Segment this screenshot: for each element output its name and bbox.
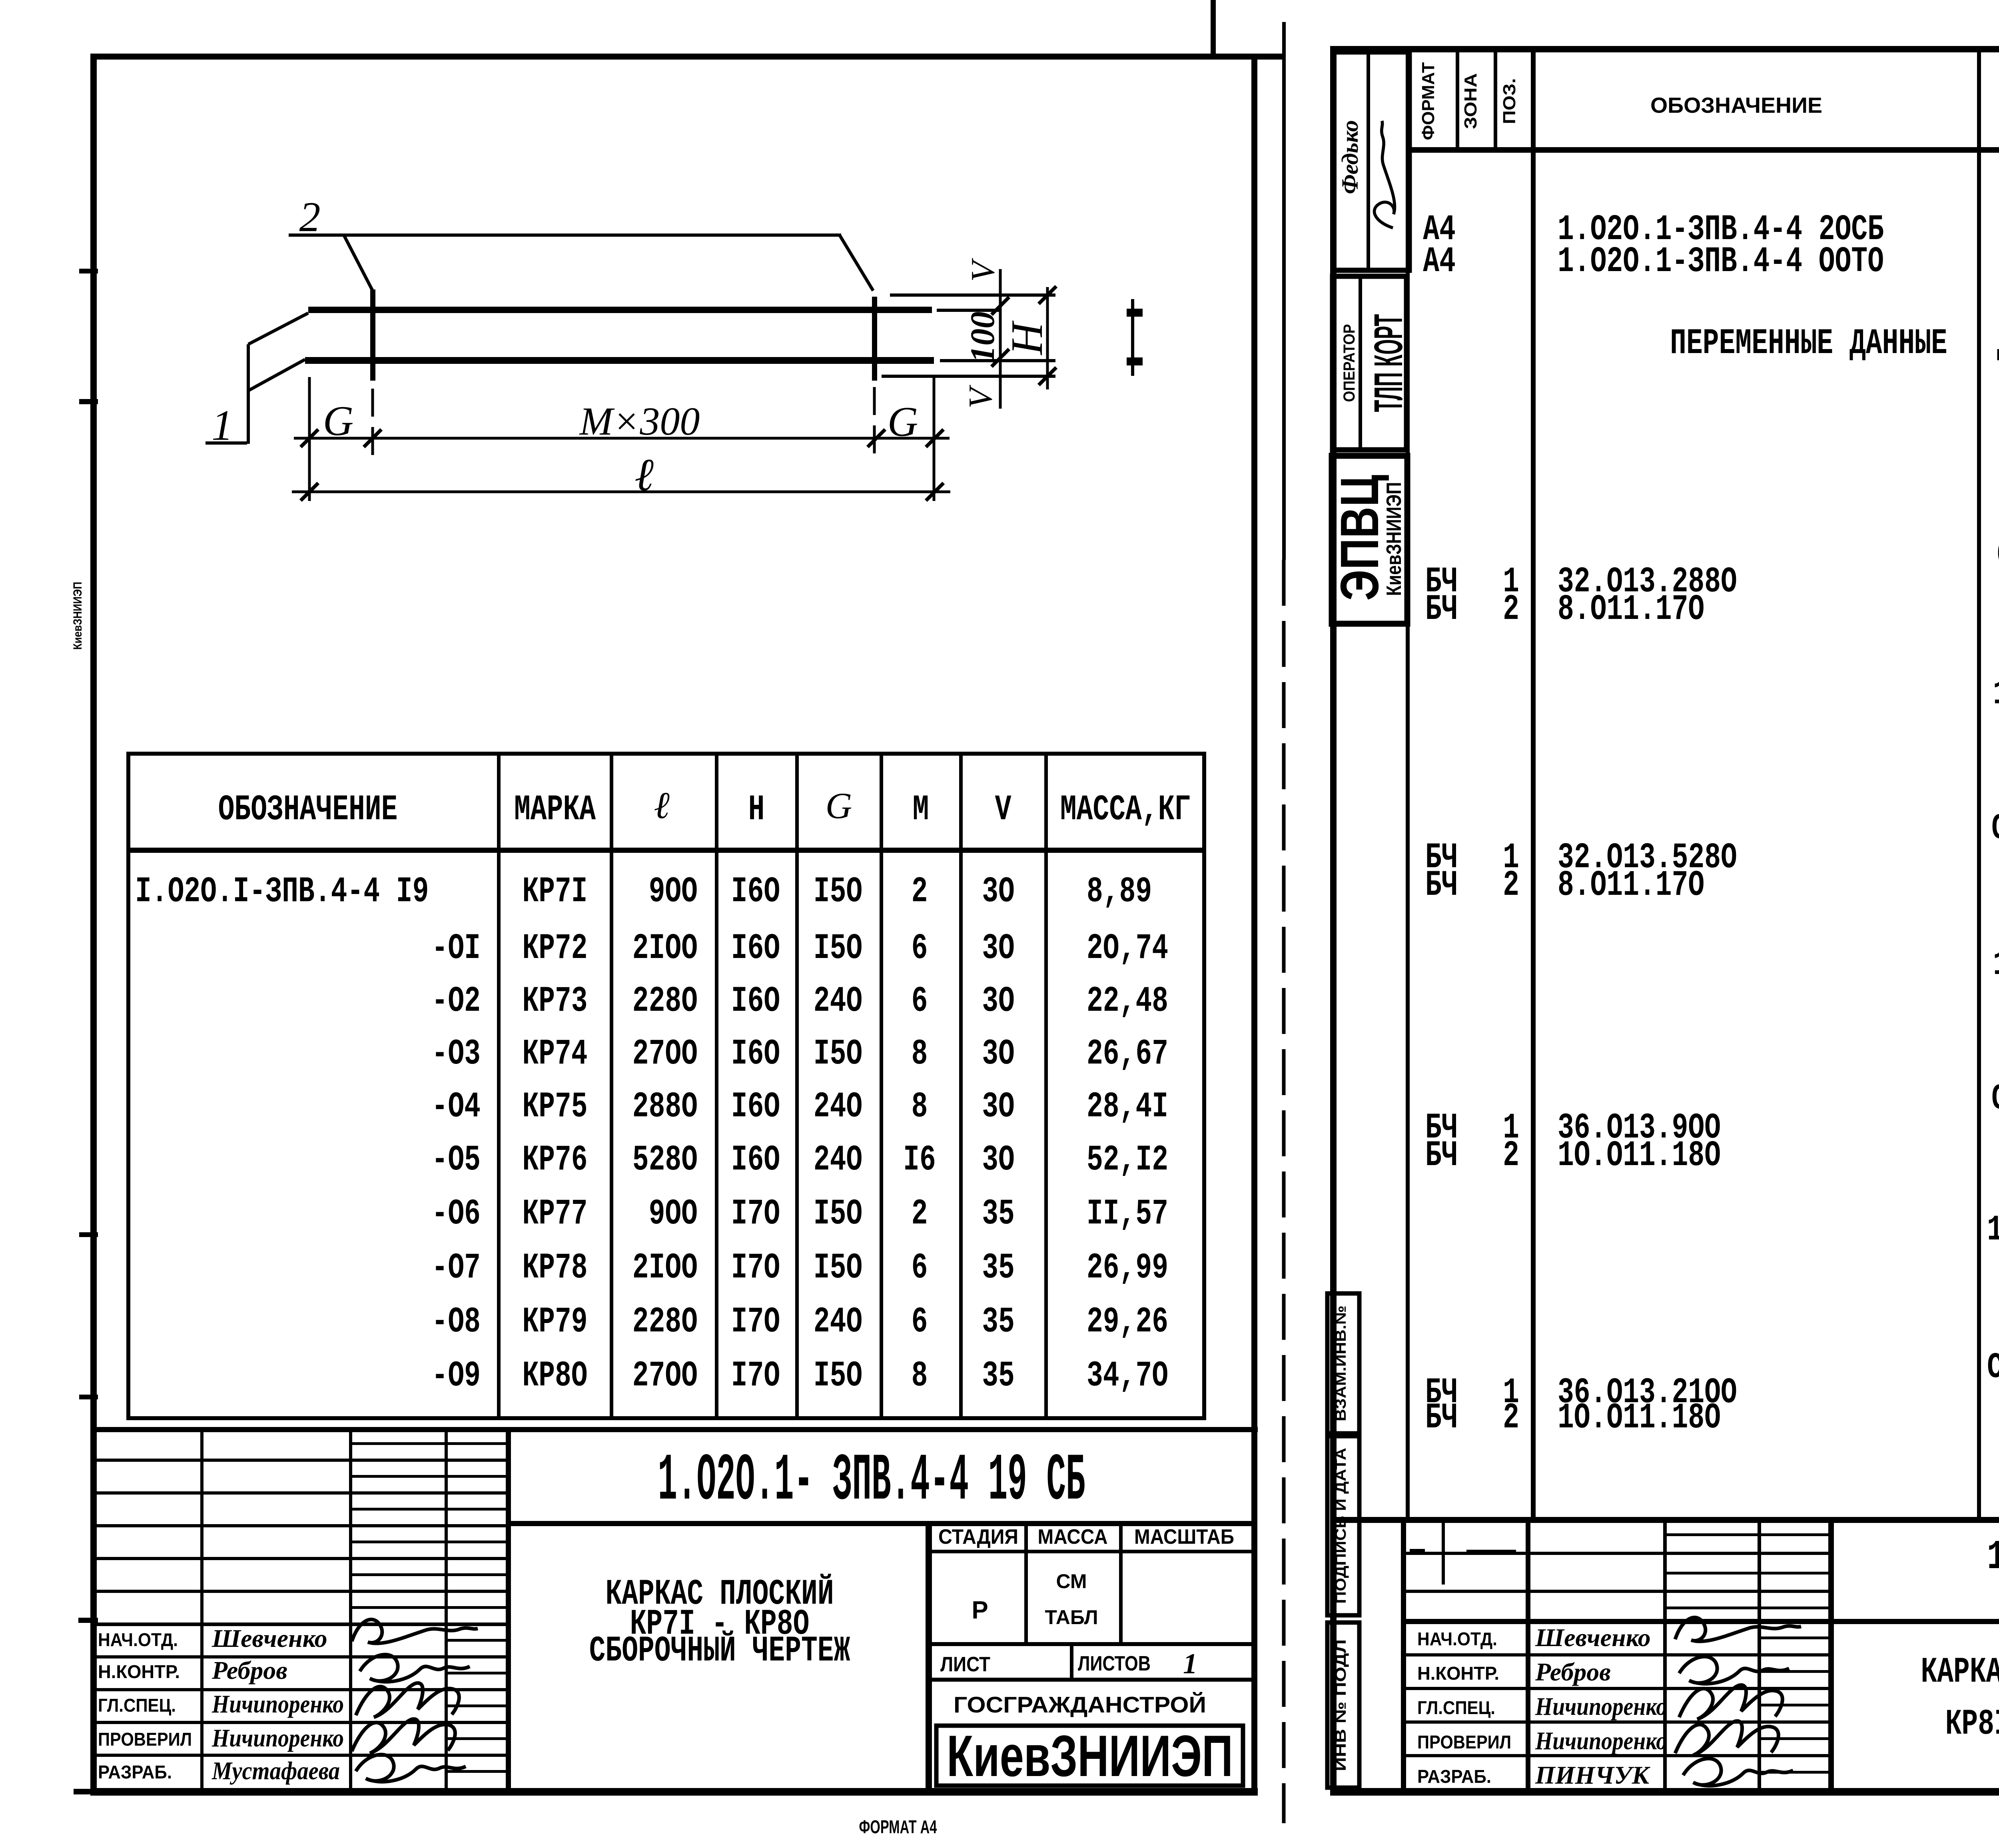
svg-text:I6О: I6О [731,1034,780,1075]
svg-text:КР7I: КР7I [522,871,587,912]
svg-text:35: 35 [982,1193,1015,1235]
svg-text:Н: Н [748,789,765,830]
svg-text:26,67: 26,67 [1087,1034,1168,1075]
svg-text:МАССА: МАССА [1038,1525,1108,1549]
svg-text:ПРОВЕРИЛ: ПРОВЕРИЛ [98,1729,192,1750]
svg-text:2: 2 [1503,589,1519,630]
svg-text:КР8I - КР9О: КР8I - КР9О [1945,1704,1999,1745]
svg-text:1О.О11.18О: 1О.О11.18О [1558,1397,1721,1439]
svg-text:-О9: -О9 [432,1355,481,1397]
svg-text:СТ. ОТД. ГОСТ 5781-82: СТ. ОТД. ГОСТ 5781-82 [1991,1078,1999,1120]
svg-text:ФОРМАТ А4: ФОРМАТ А4 [859,1816,937,1837]
svg-text:-О3: -О3 [432,1034,481,1075]
svg-text:2О,74: 2О,74 [1087,928,1168,969]
svg-text:I5О: I5О [814,928,862,969]
svg-text:ТЛП КОРТ: ТЛП КОРТ [1366,314,1411,412]
svg-text:-О4: -О4 [432,1086,481,1128]
svg-text:ℓ: ℓ [654,784,670,826]
svg-text:M×300: M×300 [579,399,700,443]
svg-text:1.О2О.1-ЗПВ.4-4 2О: 1.О2О.1-ЗПВ.4-4 2О [1987,1534,1999,1581]
svg-text:МАССА,КГ: МАССА,КГ [1060,789,1191,830]
svg-text:РАЗРАБ.: РАЗРАБ. [1417,1766,1491,1787]
svg-text:3О: 3О [982,1140,1015,1181]
svg-text:2: 2 [912,1193,928,1235]
svg-text:ГЛ.СПЕЦ.: ГЛ.СПЕЦ. [1417,1697,1495,1718]
svg-text:Ничипоренко: Ничипоренко [211,1690,344,1718]
svg-text:ЛИСТОВ: ЛИСТОВ [1078,1652,1151,1675]
svg-text:2IОО: 2IОО [632,1247,698,1289]
svg-text:I7О: I7О [731,1193,780,1235]
svg-text:ЗОНА: ЗОНА [1461,73,1480,129]
svg-text:528О: 528О [632,1140,698,1181]
svg-text:29,26: 29,26 [1087,1301,1168,1343]
svg-text:ГОСГРАЖДАНСТРОЙ: ГОСГРАЖДАНСТРОЙ [954,1692,1206,1718]
svg-text:Федько: Федько [1337,120,1363,194]
svg-text:2: 2 [299,194,321,240]
svg-text:Н.КОНТР.: Н.КОНТР. [98,1661,180,1682]
svg-text:1.О2О.1-ЗПВ.4-4 2О-О3: 1.О2О.1-ЗПВ.4-4 2О-О3 [1987,1209,1999,1251]
svg-text:27ОО: 27ОО [632,1355,698,1397]
svg-text:3О: 3О [982,1034,1015,1075]
svg-text:М: М [913,789,929,830]
svg-text:26,99: 26,99 [1087,1247,1168,1289]
svg-text:I.О2О.I-ЗПВ.4-4 I9: I.О2О.I-ЗПВ.4-4 I9 [135,871,429,912]
svg-text:G: G [888,398,918,445]
svg-text:Шевченко: Шевченко [1535,1623,1651,1652]
svg-text:СТ. ОТД. ГОСТ 5781-82: СТ. ОТД. ГОСТ 5781-82 [1987,1347,1999,1388]
svg-text:24О: 24О [814,1140,862,1181]
svg-text:288О: 288О [632,1086,698,1128]
svg-text:1.О2О.1-ЗПВ.4-4 2О-О1: 1.О2О.1-ЗПВ.4-4 2О-О1 [1993,673,1999,714]
svg-text:СТ. ОТД. ГОСТ 5781-82: СТ. ОТД. ГОСТ 5781-82 [1991,808,1999,849]
svg-text:1.О2О.1- ЗПВ.4-4 19 СБ: 1.О2О.1- ЗПВ.4-4 19 СБ [658,1444,1085,1519]
svg-text:СТ. ОТД. ГОСТ 5781-82: СТ. ОТД. ГОСТ 5781-82 [1997,535,1999,576]
svg-text:2: 2 [912,871,928,912]
svg-text:6: 6 [912,981,928,1022]
svg-text:2: 2 [1503,1135,1519,1176]
svg-text:I6О: I6О [731,928,780,969]
svg-text:II,57: II,57 [1087,1193,1168,1235]
svg-text:КиевЗНИИЭП: КиевЗНИИЭП [1383,482,1406,596]
svg-text:ПРОВЕРИЛ: ПРОВЕРИЛ [1417,1732,1511,1752]
svg-text:Н.КОНТР.: Н.КОНТР. [1417,1663,1499,1684]
svg-text:27ОО: 27ОО [632,1034,698,1075]
svg-text:I6О: I6О [731,1140,780,1181]
svg-text:1.О2О.1-ЗПВ.4-4 ООТО: 1.О2О.1-ЗПВ.4-4 ООТО [1558,241,1884,282]
svg-text:I6О: I6О [731,981,780,1022]
svg-text:-О2: -О2 [432,981,481,1022]
svg-text:ОПЕРАТОР: ОПЕРАТОР [1341,324,1358,402]
svg-text:28,4I: 28,4I [1087,1086,1168,1128]
svg-text:ОБОЗНАЧЕНИЕ: ОБОЗНАЧЕНИЕ [218,789,398,830]
svg-text:КР73: КР73 [522,981,587,1022]
svg-text:1: 1 [211,402,233,449]
svg-text:Ребров: Ребров [1535,1658,1611,1686]
svg-text:I5О: I5О [814,1034,862,1075]
svg-text:КР8О: КР8О [522,1355,587,1397]
svg-text:35: 35 [982,1247,1015,1289]
svg-text:6: 6 [912,1301,928,1343]
svg-text:Ребров: Ребров [211,1656,287,1684]
svg-text:G: G [826,785,852,826]
svg-text:КР76: КР76 [522,1140,587,1181]
svg-text:I5О: I5О [814,1193,862,1235]
svg-text:ПИНЧУК: ПИНЧУК [1535,1761,1651,1789]
svg-text:8: 8 [912,1086,928,1128]
svg-text:КАРКАС ПЛОСКИЙ: КАРКАС ПЛОСКИЙ [1921,1651,1999,1693]
svg-text:1.О2О.1-ЗПВ.4-4 2О-О2: 1.О2О.1-ЗПВ.4-4 2О-О2 [1993,944,1999,985]
svg-text:ДЛЯ ИСПОЛНЕНИЙ:: ДЛЯ ИСПОЛНЕНИЙ: [1997,323,1999,364]
svg-text:H: H [1002,320,1052,355]
svg-text:РАЗРАБ.: РАЗРАБ. [98,1762,172,1782]
svg-text:Р: Р [972,1597,988,1624]
svg-text:1О.О11.18О: 1О.О11.18О [1558,1135,1721,1176]
svg-text:ОБОЗНАЧЕНИЕ: ОБОЗНАЧЕНИЕ [1650,93,1822,118]
svg-text:2IОО: 2IОО [632,928,698,969]
svg-text:БЧ: БЧ [1425,1397,1458,1439]
svg-text:НАЧ.ОТД.: НАЧ.ОТД. [1417,1628,1497,1649]
svg-text:БЧ: БЧ [1425,1135,1458,1176]
svg-text:22,48: 22,48 [1087,981,1168,1022]
svg-text:3О: 3О [982,981,1015,1022]
svg-text:А4: А4 [1423,241,1456,282]
svg-text:ЭПВЦ: ЭПВЦ [1329,475,1390,601]
svg-text:СБОРОЧНЫЙ ЧЕРТЕЖ: СБОРОЧНЫЙ ЧЕРТЕЖ [589,1630,850,1672]
svg-text:ГЛ.СПЕЦ.: ГЛ.СПЕЦ. [98,1695,176,1716]
svg-text:КиевЗНИИЭП: КиевЗНИИЭП [947,1723,1233,1788]
svg-text:I5О: I5О [814,1355,862,1397]
svg-text:24О: 24О [814,1301,862,1343]
svg-text:КР78: КР78 [522,1247,587,1289]
svg-text:ВЗАМ.ИНВ.№: ВЗАМ.ИНВ.№ [1333,1305,1349,1421]
svg-text:МАСШТАБ: МАСШТАБ [1134,1525,1234,1549]
svg-text:ℓ: ℓ [634,449,654,500]
svg-text:ИНВ № ПОДЛ: ИНВ № ПОДЛ [1333,1639,1349,1771]
svg-text:V: V [964,258,1001,282]
svg-text:-ОI: -ОI [432,928,481,969]
svg-text:БЧ: БЧ [1425,589,1458,630]
svg-text:ПЕРЕМЕННЫЕ ДАННЫЕ: ПЕРЕМЕННЫЕ ДАННЫЕ [1670,323,1947,364]
svg-text:-О5: -О5 [432,1140,481,1181]
svg-text:I6О: I6О [731,871,780,912]
svg-text:2: 2 [1503,1397,1519,1439]
svg-text:3О: 3О [982,1086,1015,1128]
svg-text:35: 35 [982,1355,1015,1397]
svg-text:КР75: КР75 [522,1086,587,1128]
svg-text:Ничипоренко: Ничипоренко [1535,1726,1667,1755]
svg-text:БЧ: БЧ [1425,865,1458,906]
svg-text:8: 8 [912,1355,928,1397]
svg-text:МАРКА: МАРКА [514,789,596,830]
svg-text:8: 8 [912,1034,928,1075]
svg-text:Мустафаева: Мустафаева [211,1756,340,1785]
svg-text:-О7: -О7 [432,1247,481,1289]
svg-text:228О: 228О [632,1301,698,1343]
svg-text:ПОДПИСЬ И ДАТА: ПОДПИСЬ И ДАТА [1333,1448,1349,1604]
svg-text:3О: 3О [982,928,1015,969]
svg-text:V: V [995,789,1011,830]
svg-text:V: V [962,385,999,409]
svg-text:-О8: -О8 [432,1301,481,1343]
svg-text:ТАБЛ: ТАБЛ [1045,1606,1098,1628]
svg-text:52,I2: 52,I2 [1087,1140,1168,1181]
svg-text:34,7О: 34,7О [1087,1355,1168,1397]
svg-text:6: 6 [912,928,928,969]
svg-text:24О: 24О [814,1086,862,1128]
svg-text:6: 6 [912,1247,928,1289]
svg-text:ФОРМАТ: ФОРМАТ [1418,62,1438,140]
svg-text:КР72: КР72 [522,928,587,969]
svg-text:КР77: КР77 [522,1193,587,1235]
svg-text:СТАДИЯ: СТАДИЯ [938,1525,1018,1549]
svg-text:35: 35 [982,1301,1015,1343]
svg-text:1: 1 [1183,1648,1197,1680]
svg-text:-О6: -О6 [432,1193,481,1235]
svg-text:24О: 24О [814,981,862,1022]
svg-text:2: 2 [1503,865,1519,906]
svg-text:I6: I6 [903,1140,936,1181]
svg-text:8.О11.17О: 8.О11.17О [1558,865,1704,906]
svg-text:СМ: СМ [1056,1570,1087,1593]
svg-text:9ОО: 9ОО [649,871,698,912]
svg-text:9ОО: 9ОО [649,1193,698,1235]
svg-text:Ничипоренко: Ничипоренко [1535,1692,1667,1720]
svg-text:I7О: I7О [731,1355,780,1397]
svg-text:I5О: I5О [814,871,862,912]
svg-text:I5О: I5О [814,1247,862,1289]
svg-text:КиевЗНИИЭП: КиевЗНИИЭП [71,582,84,650]
svg-text:3О: 3О [982,871,1015,912]
svg-text:8.О11.17О: 8.О11.17О [1558,589,1704,630]
svg-text:100: 100 [963,311,1001,363]
svg-text:КР74: КР74 [522,1034,587,1075]
svg-text:I7О: I7О [731,1247,780,1289]
svg-text:228О: 228О [632,981,698,1022]
svg-text:Шевченко: Шевченко [211,1624,327,1652]
svg-text:8,89: 8,89 [1087,871,1152,912]
svg-text:ЛИСТ: ЛИСТ [940,1653,990,1676]
svg-text:I6О: I6О [731,1086,780,1128]
svg-text:ПОЗ.: ПОЗ. [1500,78,1519,124]
svg-text:Ничипоренко: Ничипоренко [211,1724,344,1752]
svg-text:КР79: КР79 [522,1301,587,1343]
svg-text:НАЧ.ОТД.: НАЧ.ОТД. [98,1629,178,1650]
svg-text:I7О: I7О [731,1301,780,1343]
svg-text:G: G [323,397,354,444]
